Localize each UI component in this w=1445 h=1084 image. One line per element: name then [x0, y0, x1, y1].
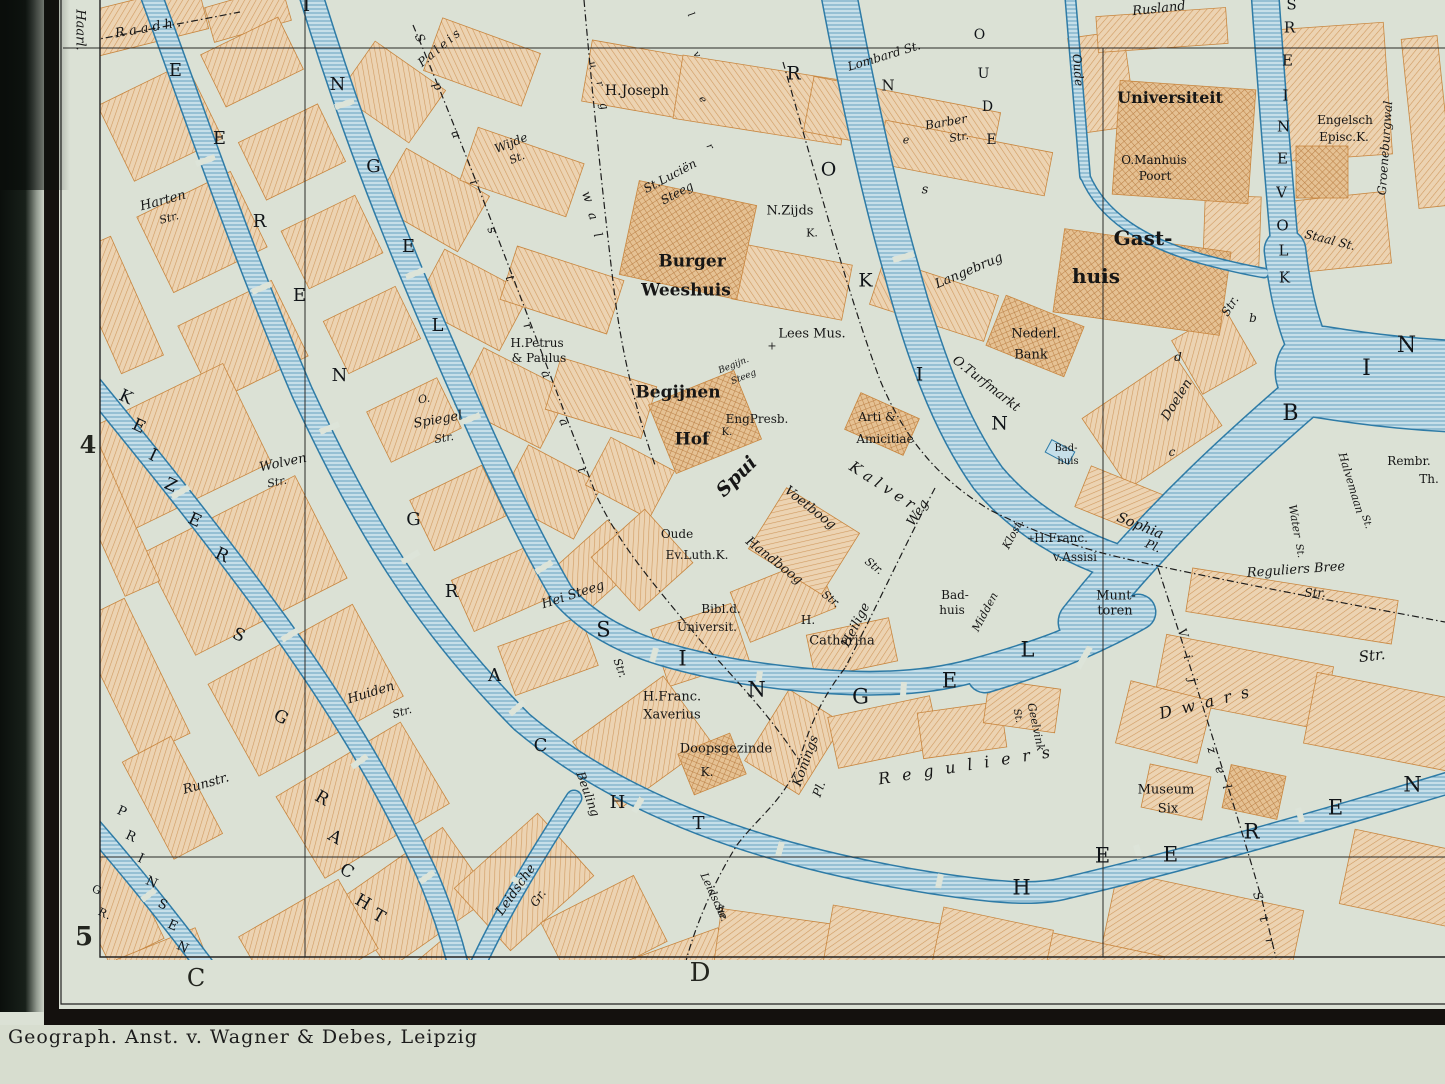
photo-edge-corner [0, 0, 70, 190]
map-canvas [0, 0, 1445, 1084]
floating-bathhouse [1045, 440, 1075, 465]
map-page: 45CDHaarl.Raadh.HartenStr.WolvenStr.O.Sp… [0, 0, 1445, 1084]
city-blocks [62, 0, 1445, 1030]
map-caption: Geograph. Anst. v. Wagner & Debes, Leipz… [8, 1026, 478, 1048]
